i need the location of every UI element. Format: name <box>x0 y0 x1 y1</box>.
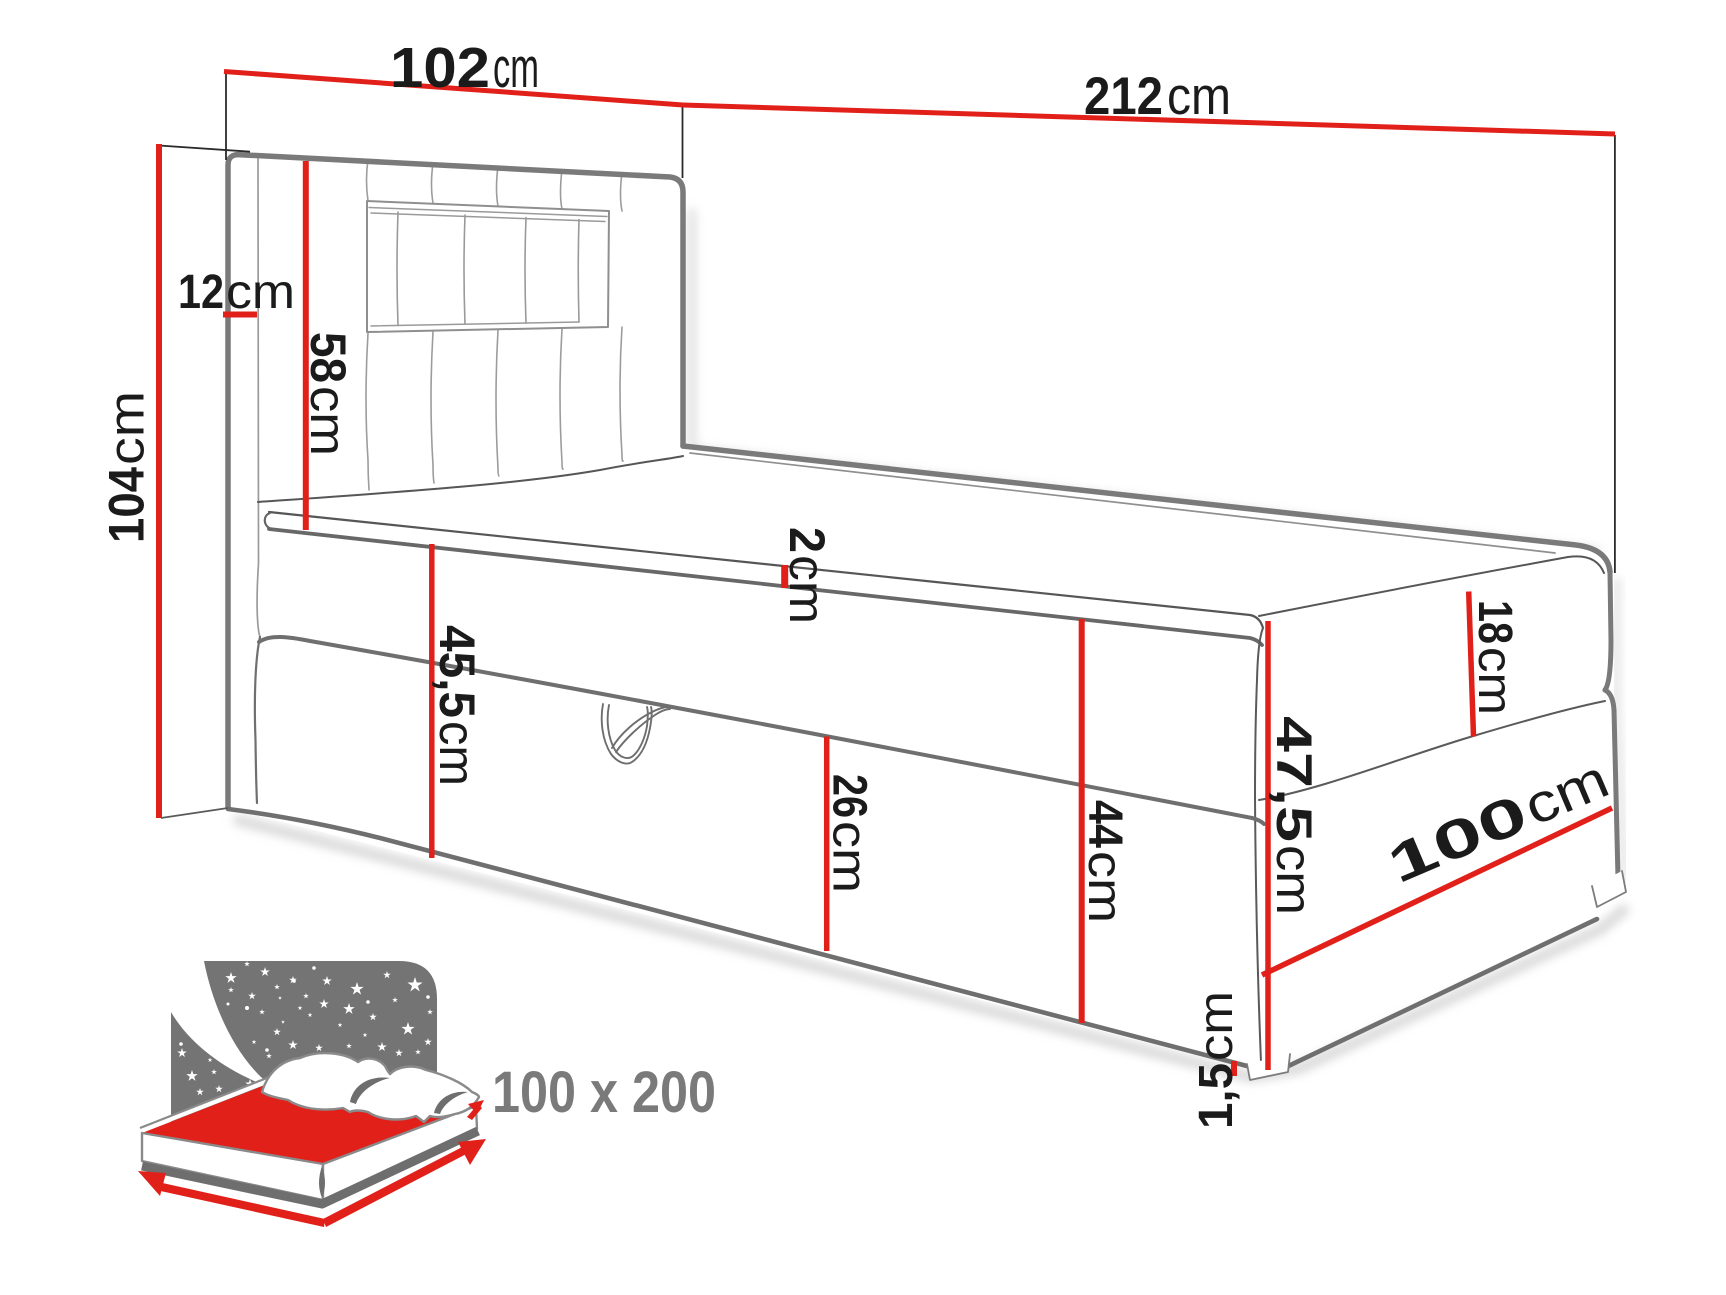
svg-text:58cm: 58cm <box>300 332 356 456</box>
svg-text:44cm: 44cm <box>1078 800 1131 923</box>
svg-text:2cm: 2cm <box>779 527 835 624</box>
svg-text:100 x 200: 100 x 200 <box>492 1060 716 1125</box>
svg-text:1,5cm: 1,5cm <box>1190 991 1243 1129</box>
svg-text:212cm: 212cm <box>1084 67 1231 126</box>
svg-text:104cm: 104cm <box>98 391 154 543</box>
svg-text:26cm: 26cm <box>823 774 876 893</box>
svg-text:18cm: 18cm <box>1468 600 1521 715</box>
svg-text:45,5cm: 45,5cm <box>429 625 485 786</box>
svg-text:47,5cm: 47,5cm <box>1266 716 1322 915</box>
svg-text:12cm: 12cm <box>178 266 295 319</box>
svg-text:102cm: 102cm <box>390 36 539 100</box>
